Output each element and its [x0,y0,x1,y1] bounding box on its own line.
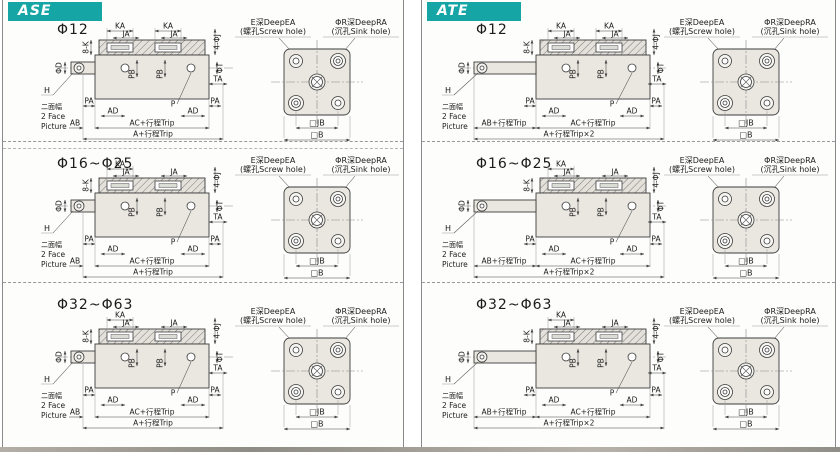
end-view-drawing: E深DeepEA (螺孔Screw hole) ΦR深DeepRA (沉孔Sin… [233,16,403,152]
piston-rod [474,62,536,74]
dim-label-ja-2: JA [610,168,619,177]
page-bottom-scan-edge [0,447,840,452]
face-label-en-2: Picture [41,411,67,420]
jb-label: □JB [738,119,753,128]
h-label: H [445,375,451,384]
dim-label-p: P [610,238,615,247]
face-label-en-1: 2 Face [442,112,467,121]
dim-label-ad-right: AD [188,107,199,116]
face-label-cn: 二面幅 [442,102,463,111]
dim-label-ta: TA [212,75,223,84]
cylinder-body [536,344,650,388]
deep-ra-label-1: ΦR深DeepRA [335,18,387,27]
ate-size-row: Φ32~Φ63 [422,282,835,446]
b-label: □B [739,269,752,278]
side-view-drawing: KA KA JA JA 8-K 4-ΦJ ΦD ΦT TA PB PB PA P… [39,16,239,142]
face-label-en-2: Picture [41,122,67,131]
dim-label-phid: ΦD [55,200,64,212]
dim-label-ac: AC+行程Trip [130,118,175,128]
dim-label-4phij: 4-ΦJ [213,34,222,50]
cylinder-cap [540,40,646,55]
center-rod-hole [309,212,325,228]
deep-ra-label-2: (沉孔Sink hole) [761,316,820,325]
cylinder-body [95,193,209,237]
center-rod-hole [309,363,325,379]
face-label-en-2: Picture [442,411,468,420]
b-label: □B [739,420,752,429]
dim-label-phid: ΦD [458,200,467,212]
side-view-drawing: KA JA JA 8-K 4-ΦJ ΦD ΦT TA PB PB PA P PA… [440,305,668,431]
port-hole-right [187,64,195,72]
dim-label-4phij: 4-ΦJ [652,34,661,50]
dim-label-p: P [171,389,176,398]
ate-series-header: ATE [427,2,521,21]
dim-label-pb-2: PB [156,207,165,217]
dim-label-pb-1: PB [569,207,578,217]
dim-label-ta: TA [651,75,662,84]
dim-label-phid: ΦD [458,62,467,74]
side-view-drawing: KA JA JA 8-K 4-ΦJ ΦD ΦT TA PB PB PA P PA… [39,305,239,431]
dim-label-pb-2: PB [156,358,165,368]
deep-ea-label-2: (螺孔Screw hole) [240,164,306,174]
dim-label-a: A+行程Trip [133,129,173,139]
face-label-en-1: 2 Face [41,250,66,259]
dim-label-ja-1: JA [121,30,130,39]
dim-label-pb-2: PB [597,69,606,79]
deep-ra-label-2: (沉孔Sink hole) [332,316,391,325]
dim-label-ab: AB+行程Trip [482,118,527,128]
dim-label-ab: AB [70,257,80,266]
piston-rod [71,200,95,212]
dim-label-ad-left: AD [108,245,119,254]
dim-label-ac: AC+行程Trip [571,256,616,266]
deep-ea-label-1: E深DeepEA [680,18,725,27]
center-rod-hole [738,363,754,379]
piston-rod [71,351,95,363]
deep-ea-label-1: E深DeepEA [251,18,296,27]
deep-ra-label-1: ΦR深DeepRA [764,307,816,316]
face-label-en-2: Picture [41,260,67,269]
cylinder-cap [99,329,205,344]
face-label-en-2: Picture [442,260,468,269]
dim-label-8k: 8-K [523,40,532,53]
dim-label-ja-2: JA [610,319,619,328]
dim-label-pa-left: PA [84,235,94,244]
deep-ra-label-2: (沉孔Sink hole) [761,165,820,174]
face-label-en-1: 2 Face [442,401,467,410]
cylinder-body [95,344,209,388]
deep-ra-label-2: (沉孔Sink hole) [332,165,391,174]
dim-label-phid: ΦD [458,351,467,363]
ase-size-row: Φ32~Φ63 [3,282,403,446]
dim-label-ad-left: AD [108,107,119,116]
dim-label-pa-left: PA [84,97,94,106]
face-label-cn: 二面幅 [41,102,62,111]
dim-label-a: A+行程Trip×2 [544,129,595,139]
dim-label-pa-left: PA [525,235,535,244]
cylinder-body [536,55,650,99]
piston-rod [474,351,536,363]
ase-series-header: ASE [8,2,102,21]
dim-label-pa-right: PA [210,235,220,244]
dim-label-ad-left: AD [549,245,560,254]
dim-label-ad-right: AD [627,107,638,116]
ase-size-row: Φ16~Φ25 [3,141,403,282]
b-label: □B [310,131,323,140]
deep-ra-label-1: ΦR深DeepRA [764,156,816,165]
dim-label-8k: 8-K [82,329,91,342]
dim-label-ja-2: JA [610,30,619,39]
deep-ra-label-1: ΦR深DeepRA [335,156,387,165]
dim-label-ja-2: JA [169,319,178,328]
dim-label-pb-1: PB [128,69,137,79]
dim-label-pa-left: PA [525,97,535,106]
dim-label-phit: ΦT [216,62,225,73]
dim-label-pb-1: PB [128,358,137,368]
dim-label-8k: 8-K [523,329,532,342]
deep-ra-label-1: ΦR深DeepRA [335,307,387,316]
ate-section: ATE Φ12 [421,0,836,448]
dim-label-ja-1: JA [121,168,130,177]
deep-ea-label-2: (螺孔Screw hole) [240,26,306,36]
end-view-drawing: E深DeepEA (螺孔Screw hole) ΦR深DeepRA (沉孔Sin… [233,154,403,290]
dim-label-ab: AB [70,119,80,128]
piston-rod [474,200,536,212]
deep-ea-label-2: (螺孔Screw hole) [669,315,735,325]
h-label: H [44,224,50,233]
jb-label: □JB [309,119,324,128]
face-label-en-1: 2 Face [442,250,467,259]
deep-ra-label-1: ΦR深DeepRA [764,18,816,27]
center-rod-hole [309,74,325,90]
dim-label-ta: TA [212,213,223,222]
b-label: □B [739,131,752,140]
dim-label-pa-right: PA [651,97,661,106]
side-view-drawing: KA JA JA 8-K 4-ΦJ ΦD ΦT TA PB PB PA P PA… [39,154,239,280]
piston-rod [71,62,95,74]
side-view-drawing: KA KA JA JA 8-K 4-ΦJ ΦD ΦT TA PB PB PA P… [440,16,668,142]
deep-ea-label-1: E深DeepEA [251,156,296,165]
dim-label-4phij: 4-ΦJ [652,172,661,188]
end-view-drawing: E深DeepEA (螺孔Screw hole) ΦR深DeepRA (沉孔Sin… [662,16,832,152]
dim-label-4phij: 4-ΦJ [213,323,222,339]
h-label: H [445,86,451,95]
dim-label-pa-left: PA [525,386,535,395]
deep-ea-label-1: E深DeepEA [680,307,725,316]
dim-label-ja-1: JA [562,319,571,328]
dim-label-8k: 8-K [82,178,91,191]
face-label-cn: 二面幅 [41,240,62,249]
dim-label-ta: TA [651,213,662,222]
deep-ea-label-2: (螺孔Screw hole) [669,26,735,36]
dim-label-ja-1: JA [121,319,130,328]
dim-label-pb-1: PB [569,358,578,368]
face-label-en-1: 2 Face [41,112,66,121]
face-label-en-2: Picture [442,122,468,131]
dim-label-pb-2: PB [597,358,606,368]
b-label: □B [310,420,323,429]
dim-label-p: P [171,100,176,109]
dim-label-ja-2: JA [169,168,178,177]
side-view-drawing: KA JA JA 8-K 4-ΦJ ΦD ΦT TA PB PB PA P PA… [440,154,668,280]
ate-size-row: Φ12 [422,0,835,141]
dim-label-pa-right: PA [651,386,661,395]
dim-label-ad-right: AD [627,245,638,254]
dim-label-4phij: 4-ΦJ [652,323,661,339]
dim-label-ad-left: AD [549,107,560,116]
h-label: H [44,86,50,95]
dim-label-p: P [610,100,615,109]
face-label-en-1: 2 Face [41,401,66,410]
dim-label-ac: AC+行程Trip [571,407,616,417]
dim-label-ac: AC+行程Trip [571,118,616,128]
jb-label: □JB [309,408,324,417]
end-view-drawing: E深DeepEA (螺孔Screw hole) ΦR深DeepRA (沉孔Sin… [662,154,832,290]
dim-label-ta: TA [651,364,662,373]
dim-label-ja-1: JA [562,30,571,39]
port-hole-right [187,202,195,210]
dim-label-ja-1: JA [562,168,571,177]
cylinder-cap [540,329,646,344]
dim-label-4phij: 4-ΦJ [213,172,222,188]
deep-ra-label-2: (沉孔Sink hole) [332,27,391,36]
dim-label-ad-right: AD [188,396,199,405]
face-label-cn: 二面幅 [442,391,463,400]
cylinder-cap [540,178,646,193]
dim-label-a: A+行程Trip [133,418,173,428]
dim-label-ad-right: AD [188,245,199,254]
ate-size-row: Φ16~Φ25 [422,141,835,282]
dim-label-8k: 8-K [523,178,532,191]
dim-label-ta: TA [212,364,223,373]
cylinder-body [536,193,650,237]
ase-section: ASE Φ12 [2,0,404,448]
port-hole-right [628,353,636,361]
dim-label-pa-left: PA [84,386,94,395]
dim-label-phit: ΦT [216,351,225,362]
dim-label-ad-left: AD [108,396,119,405]
deep-ea-label-2: (螺孔Screw hole) [240,315,306,325]
port-hole-right [628,64,636,72]
center-rod-hole [738,212,754,228]
jb-label: □JB [738,408,753,417]
jb-label: □JB [309,257,324,266]
dim-label-pb-2: PB [597,207,606,217]
deep-ea-label-1: E深DeepEA [680,156,725,165]
dim-label-pb-1: PB [569,69,578,79]
dim-label-ad-left: AD [549,396,560,405]
dim-label-p: P [610,389,615,398]
dim-label-p: P [171,238,176,247]
dim-label-ac: AC+行程Trip [130,256,175,266]
h-label: H [445,224,451,233]
dim-label-pa-right: PA [210,386,220,395]
dim-label-8k: 8-K [82,40,91,53]
dim-label-a: A+行程Trip×2 [544,418,595,428]
deep-ra-label-2: (沉孔Sink hole) [761,27,820,36]
dim-label-phit: ΦT [216,200,225,211]
port-hole-right [628,202,636,210]
dim-label-ac: AC+行程Trip [130,407,175,417]
face-label-cn: 二面幅 [41,391,62,400]
dim-label-a: A+行程Trip×2 [544,267,595,277]
center-rod-hole [738,74,754,90]
cylinder-body [95,55,209,99]
b-label: □B [310,269,323,278]
catalog-page: { "accent_color": "#16a5a5", "shared": {… [0,0,840,452]
dim-label-phid: ΦD [55,62,64,74]
end-view-drawing: E深DeepEA (螺孔Screw hole) ΦR深DeepRA (沉孔Sin… [662,305,832,441]
dim-label-ab: AB [70,408,80,417]
dim-label-pa-right: PA [210,97,220,106]
dim-label-phid: ΦD [55,351,64,363]
dim-label-ab: AB+行程Trip [482,256,527,266]
deep-ea-label-2: (螺孔Screw hole) [669,164,735,174]
face-label-cn: 二面幅 [442,240,463,249]
dim-label-ad-right: AD [627,396,638,405]
end-view-drawing: E深DeepEA (螺孔Screw hole) ΦR深DeepRA (沉孔Sin… [233,305,403,441]
dim-label-ab: AB+行程Trip [482,407,527,417]
port-hole-right [187,353,195,361]
dim-label-pa-right: PA [651,235,661,244]
dim-label-pb-1: PB [128,207,137,217]
deep-ea-label-1: E深DeepEA [251,307,296,316]
ase-size-row: Φ12 [3,0,403,141]
h-label: H [44,375,50,384]
dim-label-ja-2: JA [169,30,178,39]
dim-label-pb-2: PB [156,69,165,79]
cylinder-cap [99,178,205,193]
cylinder-cap [99,40,205,55]
dim-label-a: A+行程Trip [133,267,173,277]
jb-label: □JB [738,257,753,266]
